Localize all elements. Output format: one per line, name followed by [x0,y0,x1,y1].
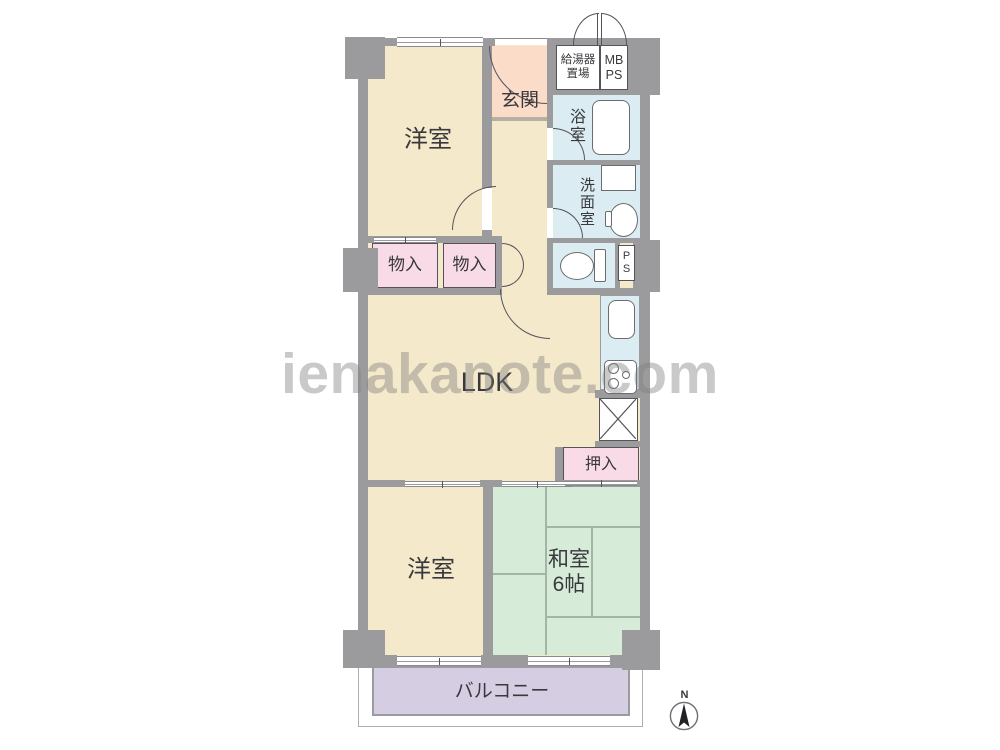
wall-ldk-bottom [480,480,502,487]
water-heater-box: 給湯器 置場 [556,45,600,90]
wall-room-divider [483,487,493,655]
wall-shaft-bottom [595,441,642,447]
shaft-x-icon [599,398,638,441]
label-bathroom: 浴室 [560,97,584,155]
entrance-door-opening [495,38,547,45]
meter-box-label-1: MB [605,53,624,68]
water-heater-label-1: 給湯器 [561,54,596,68]
window [397,37,483,47]
window [528,656,610,666]
wall-hall-right [547,160,553,208]
wall-closet-left [555,447,563,483]
toilet-icon [560,252,594,280]
water-heater-label-2: 置場 [567,68,590,82]
pillar [343,630,385,668]
wall-left [358,44,368,660]
meter-box: MB PS [600,45,628,90]
door-leaf [597,13,598,45]
wall-top [483,38,495,46]
wall-ldk-bottom [368,480,405,487]
door-leaf [601,13,602,45]
washbasin-tap-icon [605,211,612,227]
sliding-door [374,237,436,243]
window [397,656,481,666]
label-storage-left: 物入 [372,255,438,275]
sliding-door [502,481,572,487]
sliding-door [565,481,637,486]
label-ldk: LDK [445,367,529,399]
bathtub-icon [592,100,630,155]
label-western-room-top: 洋室 [378,126,478,154]
label-balcony: バルコニー [432,681,572,703]
meter-box-label-2: PS [606,68,623,83]
label-japanese-room: 和室 6帖 [519,550,619,596]
label-japanese-room-2: 6帖 [553,573,586,598]
label-entrance: 玄関 [492,90,548,112]
stove-burner-icon [608,363,619,374]
wall-hall-right [547,44,553,128]
stove-burner-icon [622,371,630,379]
sliding-door [405,481,480,487]
pipe-space-label-1: P [623,250,630,263]
pillar [345,37,385,79]
wall-hall-right [547,238,553,288]
pipe-space-box: P S [618,245,635,281]
pillar [633,240,660,292]
door-arc-utility-left [573,13,599,45]
door-arc-utility-right [601,13,627,45]
label-closet: 押入 [563,456,639,475]
pipe-space-label-2: S [623,263,630,276]
compass-icon [669,701,699,731]
wall-top [383,38,397,46]
stove-burner-icon [608,378,619,389]
wall-ldk-top [368,288,502,295]
wall-bottom [481,655,528,667]
washbasin-icon [609,203,638,237]
wall-toilet-ldk [547,288,642,295]
tatami-line [545,616,640,618]
wall-right [640,93,650,655]
entrance-step-line [490,117,547,121]
label-storage-right: 物入 [443,255,496,275]
wall-entrance-left [482,46,492,188]
kitchen-sink-icon [608,300,635,339]
pillar [622,630,660,670]
toilet-tank-icon [594,249,606,282]
label-washroom: 洗面室 [571,167,595,237]
label-western-room-bottom: 洋室 [381,556,481,584]
floor-plan: 給湯器 置場 MB PS P S 洋室 玄関 浴室 洗面室 物入 物入 LDK … [0,0,1000,750]
washing-machine-icon [601,165,636,191]
wall-washroom-toilet [553,238,640,243]
label-japanese-room-1: 和室 [548,548,590,573]
